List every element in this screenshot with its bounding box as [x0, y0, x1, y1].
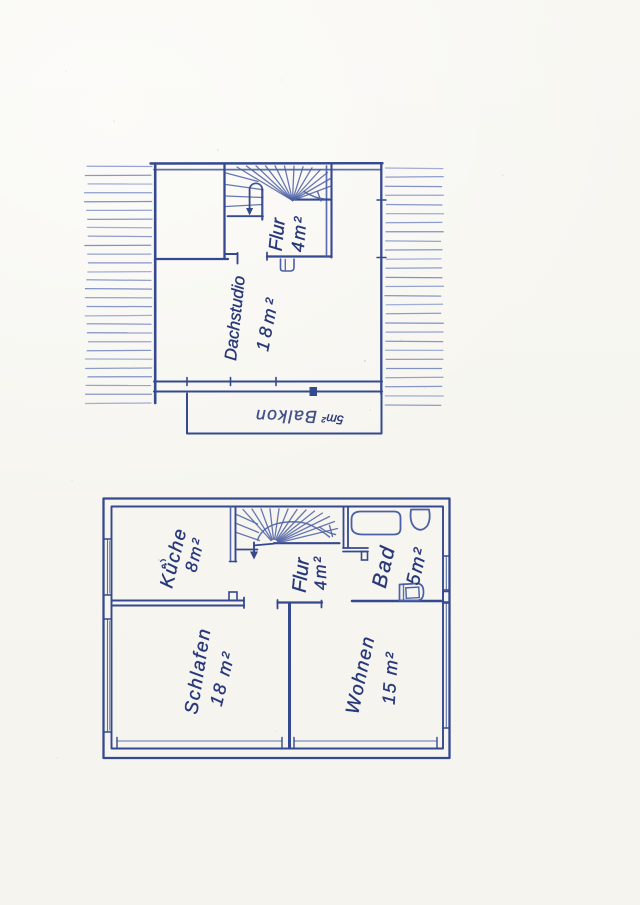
svg-text:4m²: 4m²	[288, 214, 311, 253]
svg-text:15 m²: 15 m²	[379, 650, 403, 705]
svg-text:Balkon: Balkon	[254, 406, 317, 427]
svg-text:5m²: 5m²	[403, 545, 432, 587]
svg-text:Flur: Flur	[266, 217, 290, 252]
svg-text:4m²: 4m²	[310, 555, 330, 591]
svg-text:Wohnen: Wohnen	[342, 634, 379, 716]
svg-text:5m²: 5m²	[321, 411, 345, 427]
svg-text:Dachstudio: Dachstudio	[221, 275, 249, 362]
svg-text:18m²: 18m²	[252, 293, 283, 353]
svg-text:Bad: Bad	[368, 543, 400, 590]
